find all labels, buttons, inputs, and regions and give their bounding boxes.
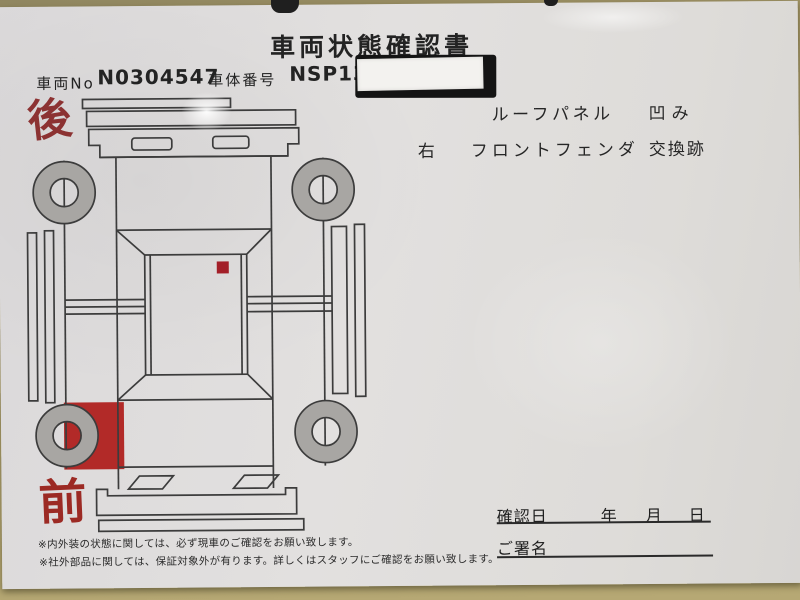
- vehicle-condition-sheet: 後 前 車両状態確認書 車両No N0304547 車体番号 NSP130- ル…: [0, 1, 800, 589]
- vehicle-no-value: N0304547: [97, 64, 219, 89]
- damage-side-2: 右: [418, 137, 439, 162]
- roof-dent-marker: [217, 261, 229, 273]
- damage-part-2: フロントフェンダ: [471, 135, 639, 161]
- footnote-interior-exterior: ※内外装の状態に関しては、必ず現車のご確認をお願い致します。: [38, 534, 359, 552]
- damage-part-1: ルーフパネル: [491, 99, 613, 125]
- glare-soft: [429, 201, 771, 484]
- vehicle-no-label: 車両No: [36, 72, 95, 93]
- redaction-white-sticker: [357, 57, 484, 92]
- damage-condition-1: 凹み: [648, 99, 694, 124]
- chassis-no-label: 車体番号: [208, 69, 276, 91]
- footnote-aftermarket-parts: ※社外部品に関しては、保証対象外が有ります。詳しくはスタッフにご確認をお願い致し…: [39, 551, 499, 570]
- dark-mark: [271, 0, 299, 13]
- front-orientation-label: 前: [38, 478, 88, 528]
- wheel-front-right: [295, 400, 357, 462]
- damage-condition-2: 交換跡: [649, 135, 706, 160]
- glare-streak: [518, 0, 708, 39]
- wheels: [33, 158, 357, 467]
- rear-orientation-label: 後: [25, 96, 74, 145]
- signature-line: [497, 555, 713, 558]
